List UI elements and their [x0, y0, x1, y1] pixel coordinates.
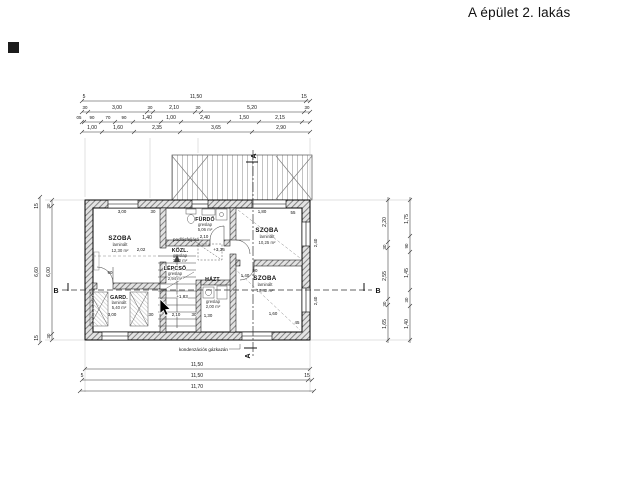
- window-right-upper: [302, 222, 310, 246]
- svg-text:laminált: laminált: [258, 282, 274, 287]
- dim-label: 15: [34, 203, 40, 209]
- dim-label: 1,40: [404, 319, 410, 329]
- dim-label: 3,65: [211, 125, 221, 131]
- dim-label: 30: [83, 105, 88, 110]
- dim-label: 11,50: [191, 373, 203, 379]
- room-label-furdo: FÜRDŐ greslap 5,06 m²: [195, 216, 214, 232]
- dim-label: 45: [295, 320, 300, 325]
- dim-label: 55: [291, 210, 296, 215]
- dim-label: 90: [253, 268, 258, 273]
- window-right-lower: [302, 288, 310, 312]
- room-label-szoba-br: SZOBA laminált 10,42 m²: [253, 275, 276, 293]
- svg-text:SZOBA: SZOBA: [253, 275, 276, 282]
- dimension-block-bottom: 11,50 5 11,50 15 11,70: [78, 362, 316, 393]
- dim-label: 5,20: [247, 105, 257, 111]
- dim-label: 90: [90, 115, 95, 120]
- boiler-note-label: kondenzációs gázkazán: [179, 347, 228, 352]
- svg-text:laminált: laminált: [113, 242, 129, 247]
- dim-label: 11,70: [191, 384, 203, 390]
- floor-plan-svg: A A B B SZOBA laminált 12,30 m² FÜRDŐ gr…: [0, 0, 640, 480]
- dim-label: 90: [108, 270, 113, 275]
- window-top-middle: [192, 200, 208, 208]
- dim-label: 1,45: [404, 268, 410, 278]
- dim-label: 3,00: [112, 105, 122, 111]
- svg-text:12,30 m²: 12,30 m²: [112, 248, 130, 253]
- attic-access-label: padlásfeljáró: [173, 237, 199, 242]
- dim-label: 2,55: [382, 271, 388, 281]
- room-label-szoba-tl: SZOBA laminált 12,30 m²: [108, 235, 131, 253]
- dim-label: 2,40: [313, 296, 318, 305]
- dim-label: 90: [122, 115, 127, 120]
- window-bottom-left: [102, 332, 128, 340]
- level-marker-stair: +1,83: [176, 294, 188, 299]
- room-label-szoba-tr: SZOBA laminált 10,25 m²: [255, 227, 278, 245]
- svg-text:5,40 m²: 5,40 m²: [112, 305, 127, 310]
- dim-label: 30: [192, 312, 197, 317]
- dim-label: 1,65: [382, 319, 388, 329]
- dim-label: 11,50: [191, 362, 203, 368]
- dim-label: 2,40: [313, 238, 318, 247]
- dim-label: 2,35: [152, 125, 162, 131]
- dim-label: 30: [46, 203, 51, 208]
- room-label-gard: GARD. laminált 5,40 m²: [110, 295, 128, 310]
- svg-text:10,25 m²: 10,25 m²: [259, 240, 277, 245]
- dim-label: 30: [148, 105, 153, 110]
- dim-label: 15: [301, 94, 307, 100]
- svg-text:2,94 m²: 2,94 m²: [168, 276, 183, 281]
- dim-label: 05: [77, 115, 82, 120]
- window-top-right: [252, 200, 286, 208]
- dim-label: 1,40: [241, 273, 250, 278]
- section-b-right-label: B: [375, 288, 380, 295]
- svg-text:SZOBA: SZOBA: [255, 227, 278, 234]
- dim-label: 6,00: [46, 267, 52, 277]
- sink-icon: [202, 209, 215, 215]
- dim-label: 30: [151, 209, 156, 214]
- dim-label: 1,60: [113, 125, 123, 131]
- dim-label: 11,50: [190, 94, 202, 100]
- dim-label: 3,00: [108, 312, 117, 317]
- dim-label: 2,10: [172, 312, 181, 317]
- dim-label: 1,60: [269, 311, 278, 316]
- wardrobe-right: [130, 292, 148, 326]
- washing-machine-icon: [203, 287, 214, 298]
- dim-label: 30: [149, 312, 154, 317]
- dim-label: 70: [106, 115, 111, 120]
- shower-icon: [216, 209, 227, 220]
- dimension-block-left: 15 6,60 15 30 6,00 30: [34, 195, 54, 345]
- svg-text:5,06 m²: 5,06 m²: [198, 227, 213, 232]
- dim-label: 1,00: [166, 115, 176, 121]
- room-label-hazt: HÁZT. greslap 2,00 m²: [205, 276, 221, 309]
- dim-label: 30: [382, 244, 387, 249]
- section-a-bottom-label: A: [245, 353, 252, 358]
- level-marker-upper: +3,35: [213, 247, 225, 252]
- svg-text:2,00 m²: 2,00 m²: [206, 304, 221, 309]
- dim-label: 30: [305, 105, 310, 110]
- boiler-note: kondenzációs gázkazán: [179, 344, 240, 352]
- room-label-kozl: KÖZL. greslap 3,90 m²: [172, 247, 189, 263]
- dim-label: 15: [304, 373, 310, 379]
- page-title: A épület 2. lakás: [468, 5, 570, 20]
- dim-label: 30: [382, 301, 387, 306]
- svg-text:laminált: laminált: [260, 234, 276, 239]
- dim-label: 1,50: [239, 115, 249, 121]
- dim-label: 30: [404, 297, 409, 302]
- dim-label: 6,60: [34, 267, 40, 277]
- dim-label: 3,00: [118, 209, 127, 214]
- dim-label: 2,10: [200, 234, 209, 239]
- svg-text:10,42 m²: 10,42 m²: [257, 288, 275, 293]
- dim-label: 2,10: [169, 105, 179, 111]
- wardrobe-left: [90, 292, 108, 326]
- dim-label: 2,15: [275, 115, 285, 121]
- radiator: [94, 252, 99, 270]
- dim-label: 5: [83, 94, 86, 100]
- dim-label: 1,75: [404, 214, 410, 224]
- window-top-left: [108, 200, 138, 208]
- svg-text:SZOBA: SZOBA: [108, 235, 131, 242]
- roof-overhang: [172, 155, 312, 200]
- dim-label: 5: [81, 373, 84, 379]
- floorplan-page: A épület 2. lakás: [0, 0, 640, 480]
- svg-text:HÁZT.: HÁZT.: [205, 276, 221, 283]
- boiler-icon: [217, 286, 227, 299]
- dim-label: 1,00: [87, 125, 97, 131]
- dim-label: 2,90: [276, 125, 286, 131]
- dim-label: 2,20: [382, 217, 388, 227]
- dim-label: 30: [46, 333, 51, 338]
- dim-label: 15: [34, 335, 40, 341]
- dim-label: 1,30: [204, 313, 213, 318]
- dimension-block-top: 5 11,50 15 30 3,00 30 2,10 30 5,20 30 05…: [77, 94, 312, 134]
- dim-label: 2,02: [137, 247, 146, 252]
- dim-label: 1,40: [142, 115, 152, 121]
- dim-label: 90: [404, 243, 409, 248]
- dim-label: 30: [196, 105, 201, 110]
- dim-label: 2,40: [200, 115, 210, 121]
- section-a-top-label: A: [251, 153, 258, 158]
- dim-label: 1,80: [258, 209, 267, 214]
- dimension-block-right: 2,20 30 2,55 30 1,65 1,75 90 1,45 30 1,4…: [382, 197, 412, 343]
- svg-text:3,90 m²: 3,90 m²: [173, 258, 188, 263]
- corner-marker: [8, 42, 19, 53]
- window-bottom-right: [242, 332, 272, 340]
- section-b-left-label: B: [53, 288, 58, 295]
